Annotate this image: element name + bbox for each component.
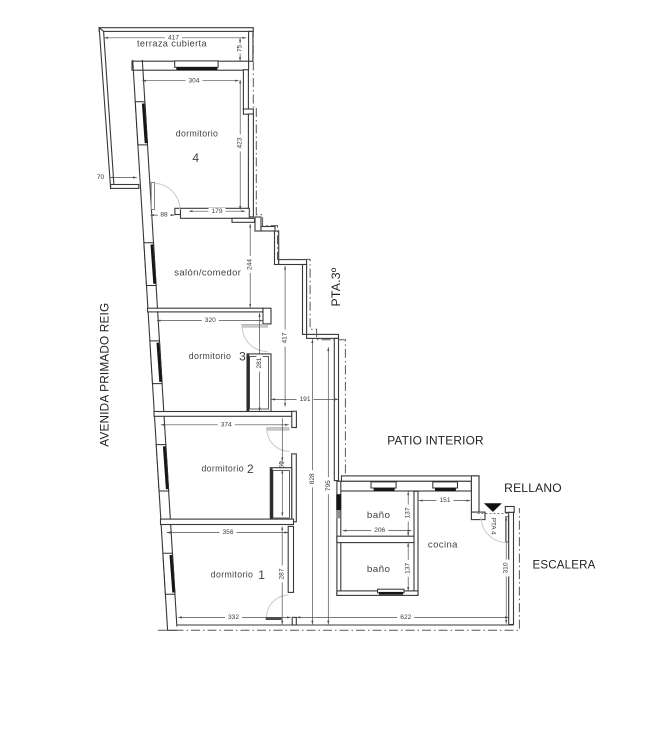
svg-text:PATIO INTERIOR: PATIO INTERIOR — [387, 434, 484, 448]
svg-text:206: 206 — [374, 527, 385, 534]
svg-text:417: 417 — [168, 34, 179, 41]
svg-text:baño: baño — [367, 564, 391, 575]
svg-text:423: 423 — [237, 137, 244, 148]
svg-text:dormitorio: dormitorio — [176, 129, 219, 140]
svg-text:3: 3 — [239, 350, 246, 364]
svg-text:191: 191 — [299, 396, 310, 403]
svg-text:dormitorio: dormitorio — [211, 569, 254, 580]
svg-text:RELLANO: RELLANO — [504, 481, 562, 495]
svg-text:287: 287 — [279, 568, 286, 579]
svg-text:828: 828 — [309, 473, 316, 484]
svg-text:310: 310 — [503, 562, 510, 573]
svg-text:374: 374 — [221, 421, 232, 428]
svg-text:baño: baño — [367, 510, 391, 521]
svg-text:4: 4 — [192, 151, 199, 165]
svg-text:70: 70 — [97, 174, 105, 181]
svg-text:1: 1 — [258, 568, 265, 582]
svg-text:137: 137 — [405, 507, 412, 518]
svg-text:622: 622 — [400, 614, 411, 621]
svg-text:2: 2 — [247, 462, 254, 476]
svg-text:dormitorio: dormitorio — [189, 351, 232, 362]
svg-text:356: 356 — [222, 529, 233, 536]
svg-text:PTA.3º: PTA.3º — [329, 267, 343, 306]
svg-text:dormitorio: dormitorio — [201, 464, 244, 475]
svg-text:137: 137 — [405, 562, 412, 573]
svg-text:AVENIDA PRIMADO REIG: AVENIDA PRIMADO REIG — [98, 303, 112, 447]
svg-text:795: 795 — [325, 480, 332, 491]
svg-text:281: 281 — [256, 357, 263, 368]
svg-text:332: 332 — [228, 614, 239, 621]
svg-text:cocina: cocina — [428, 539, 458, 550]
svg-text:151: 151 — [439, 497, 450, 504]
svg-text:417: 417 — [282, 332, 289, 343]
svg-text:50: 50 — [279, 461, 286, 469]
svg-text:320: 320 — [205, 317, 216, 324]
svg-text:ESCALERA: ESCALERA — [533, 558, 596, 572]
svg-text:75: 75 — [237, 45, 244, 53]
svg-text:244: 244 — [247, 259, 254, 270]
svg-text:179: 179 — [211, 208, 222, 215]
svg-text:88: 88 — [160, 212, 168, 219]
svg-text:304: 304 — [188, 77, 199, 84]
svg-text:salón/comedor: salón/comedor — [174, 268, 241, 279]
svg-text:PTA 4: PTA 4 — [489, 518, 496, 535]
